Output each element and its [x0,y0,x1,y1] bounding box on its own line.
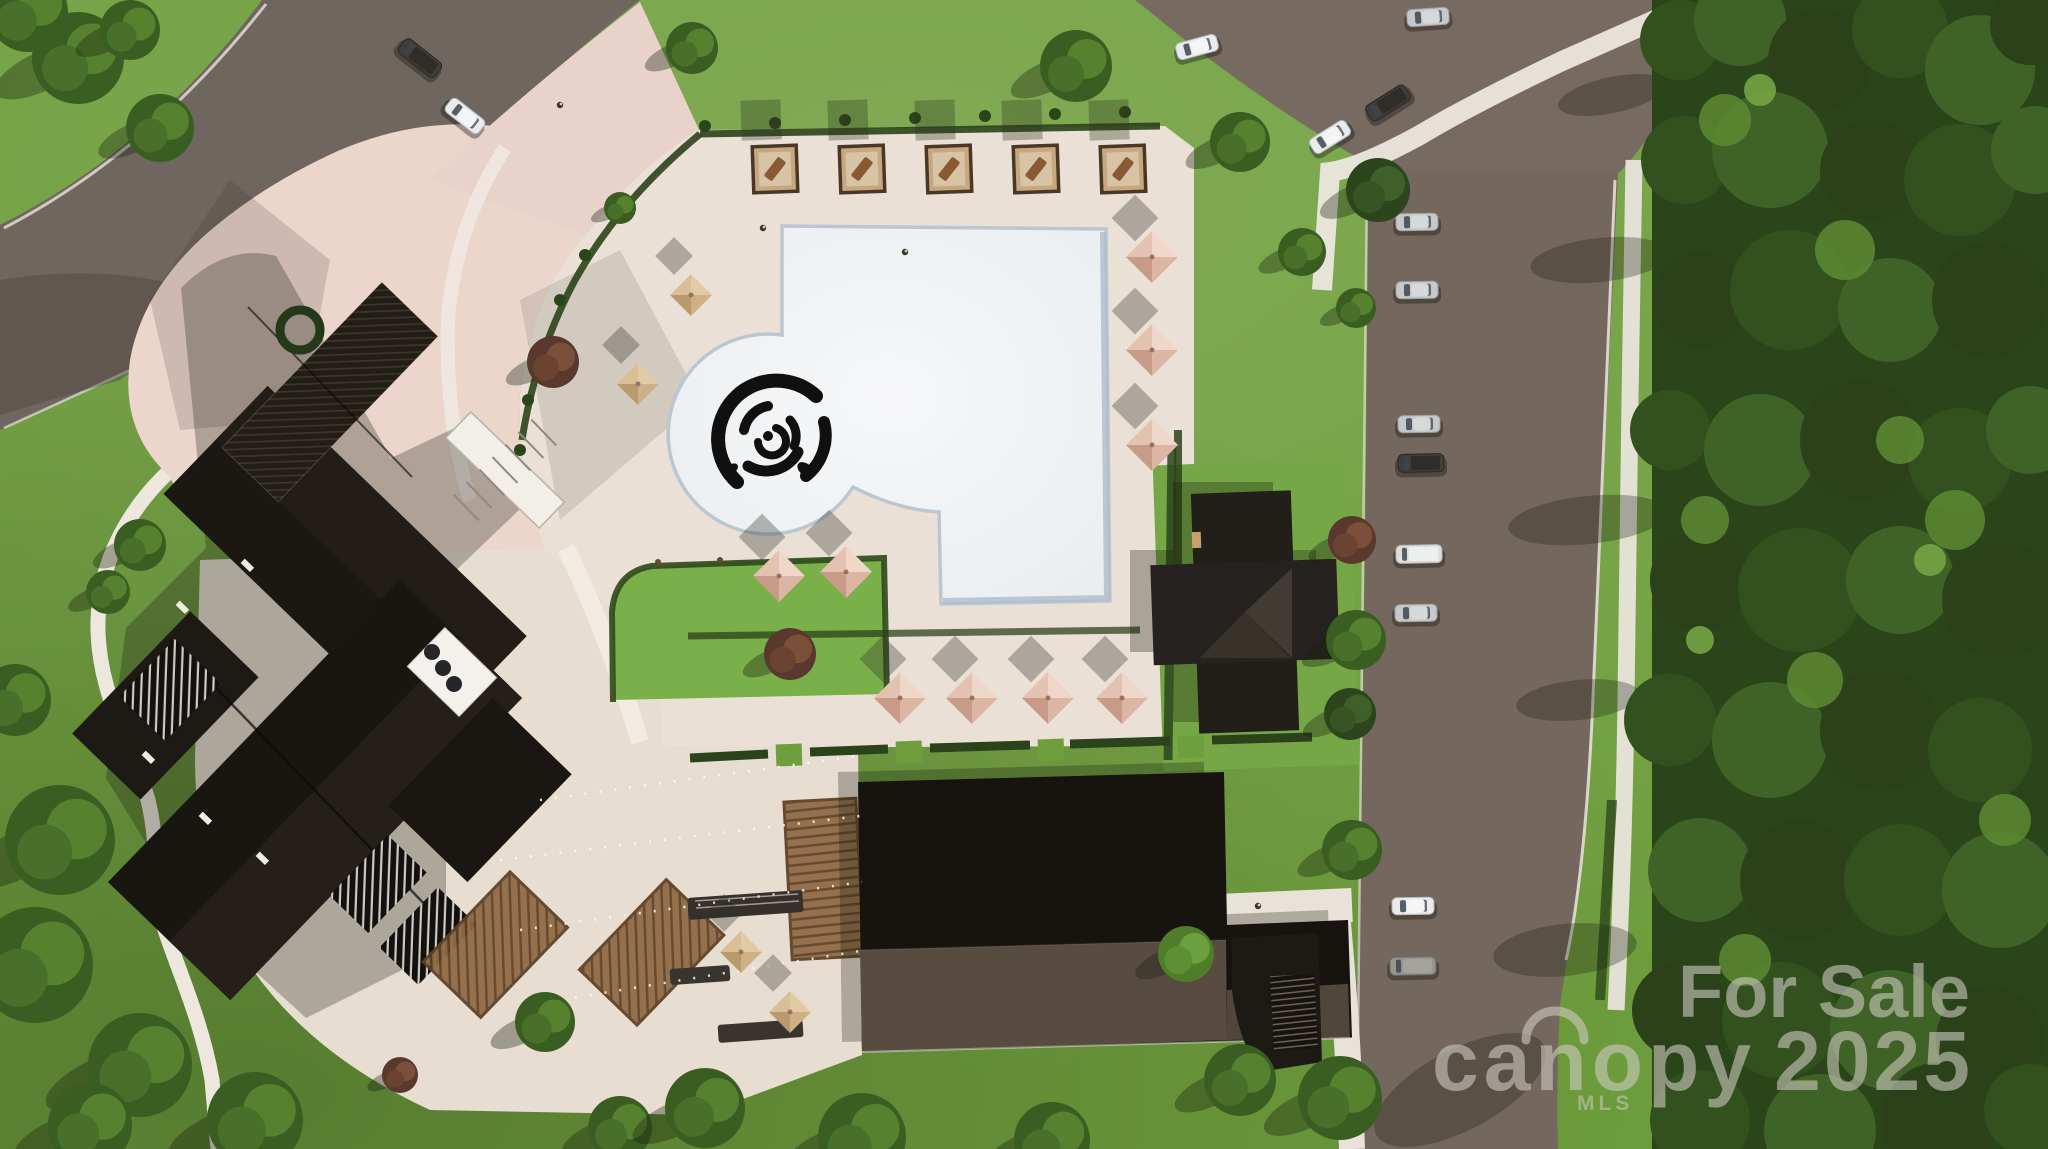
umbrella-pole [777,574,782,579]
watermark-mls: MLS [1577,1092,1633,1115]
forest-tree [1740,820,1860,940]
forest-clump-bright [1686,626,1714,654]
cypress-shrub [579,249,591,261]
parked-car-sedan-silver [1392,604,1440,627]
van-cargo-roof [1411,456,1440,471]
parked-car-van-gray [1387,957,1439,981]
parked-car-sedan-white [1389,897,1437,920]
parked-car-sedan-silver [1393,281,1441,304]
tree-shade-side [1048,56,1084,92]
umbrella-pole [844,570,849,575]
chimney-vent [424,644,440,660]
tree-shade-side [107,22,137,52]
person [902,249,908,255]
tree-shade-side [17,825,72,880]
umbrella-pole [636,382,641,387]
umbrella-pole [689,293,694,298]
tree-shade-side [533,355,559,381]
tree-shade-side [1329,842,1359,872]
forest-tree [1928,698,2032,802]
umbrella-pole [788,1010,793,1015]
forest-tree [1624,674,1716,766]
car-roof [1422,10,1441,24]
umbrella-pole [1046,696,1051,701]
cabana-shadow [1088,99,1129,140]
person [1255,903,1261,909]
tree-shade-side [1330,707,1356,733]
umbrella-pole [1120,696,1125,701]
forest-clump-light [1699,94,1751,146]
van-cargo-roof [1403,959,1432,974]
car-windshield [1400,900,1406,912]
tree-shade-side [1283,245,1307,269]
cypress-shrub [554,294,566,306]
forest-clump-light [1681,496,1729,544]
forest-clump-light [1925,490,1985,550]
van-windshield [1404,457,1409,470]
car-windshield [1404,216,1410,228]
car-windshield [1406,418,1412,430]
scene-canvas: For Sale canopy 2025 MLS [0,0,2048,1149]
forest-clump-bright [1744,74,1776,106]
person [760,225,766,231]
cypress-shrub [699,120,711,132]
tree-shade-side [120,538,146,564]
tree-shade-side [386,1070,404,1088]
forest-clump-light [1876,416,1924,464]
tree-shade-side [674,1097,714,1137]
chimney-vent [435,660,451,676]
tree-shade-side [608,204,624,220]
car-windshield [1404,284,1410,296]
car-roof [1411,215,1429,228]
lawn-post [655,559,661,565]
tree-shade-side [672,41,698,67]
car-roof [1410,606,1428,619]
forest-clump-bright [1914,544,1946,576]
parked-car-sedan-silver [1403,7,1452,32]
car-roof [1411,283,1429,296]
tree-shade-side [1353,181,1385,213]
umbrella-pole [1150,255,1155,260]
tree-shade-side [522,1014,552,1044]
forest-clump-light [1815,220,1875,280]
tree-shade-side [1217,134,1247,164]
cabana-shadow [740,99,781,140]
tree-shade-side [1333,632,1363,662]
cypress-shrub [979,110,991,122]
forest-tree [1932,242,2048,358]
van-windshield [1396,960,1401,973]
tree-shade-side [770,647,796,673]
car-roof [1413,417,1431,430]
forest-clump-light [1979,794,2031,846]
watermark-year: 2025 [1774,1014,1973,1108]
umbrella-pole [898,696,903,701]
tree-shade-side [133,118,167,152]
lawn-post [717,557,723,563]
parked-car-sedan-silver [1395,415,1443,438]
tree-shade-side [1340,302,1360,322]
forest-tree [1650,530,1750,630]
car-windshield [1415,12,1422,24]
forest-clump-light [1787,652,1843,708]
parked-car-sedan-silver [1393,213,1441,236]
chimney-vent [446,676,462,692]
cypress-shrub [514,444,526,456]
van-windshield [1402,548,1407,561]
van-cargo-roof [1409,547,1438,562]
parked-car-van-dark [1395,454,1447,478]
cabana-shadow [827,99,868,140]
umbrella-pole [1150,443,1155,448]
umbrella-pole [1150,348,1155,353]
umbrella-pole [970,696,975,701]
person [557,102,563,108]
forest-tree [1630,390,1710,470]
annex-louver-roof [1270,974,1318,1051]
car-windshield [1403,607,1409,619]
tree-shade-side [1333,533,1357,557]
tree-shade-side [91,586,113,608]
parked-car-van-white [1393,545,1445,569]
car-roof [1407,899,1425,912]
cabana-shadow [1001,99,1042,140]
cabana-shadow [914,99,955,140]
umbrella-pole [739,950,744,955]
tree-shade-side [1212,1070,1248,1106]
forest-tree [1844,824,1956,936]
forest-tree [1648,818,1752,922]
forest-tree [1738,528,1862,652]
aerial-site-rendering: For Sale canopy 2025 MLS [0,0,2048,1149]
tree-shade-side [1307,1086,1349,1128]
tree-shade-side [1164,946,1192,974]
pool-house-door [1192,532,1202,548]
cypress-shrub [1049,108,1061,120]
cypress-shrub [522,394,534,406]
forest-tree [1704,394,1816,506]
